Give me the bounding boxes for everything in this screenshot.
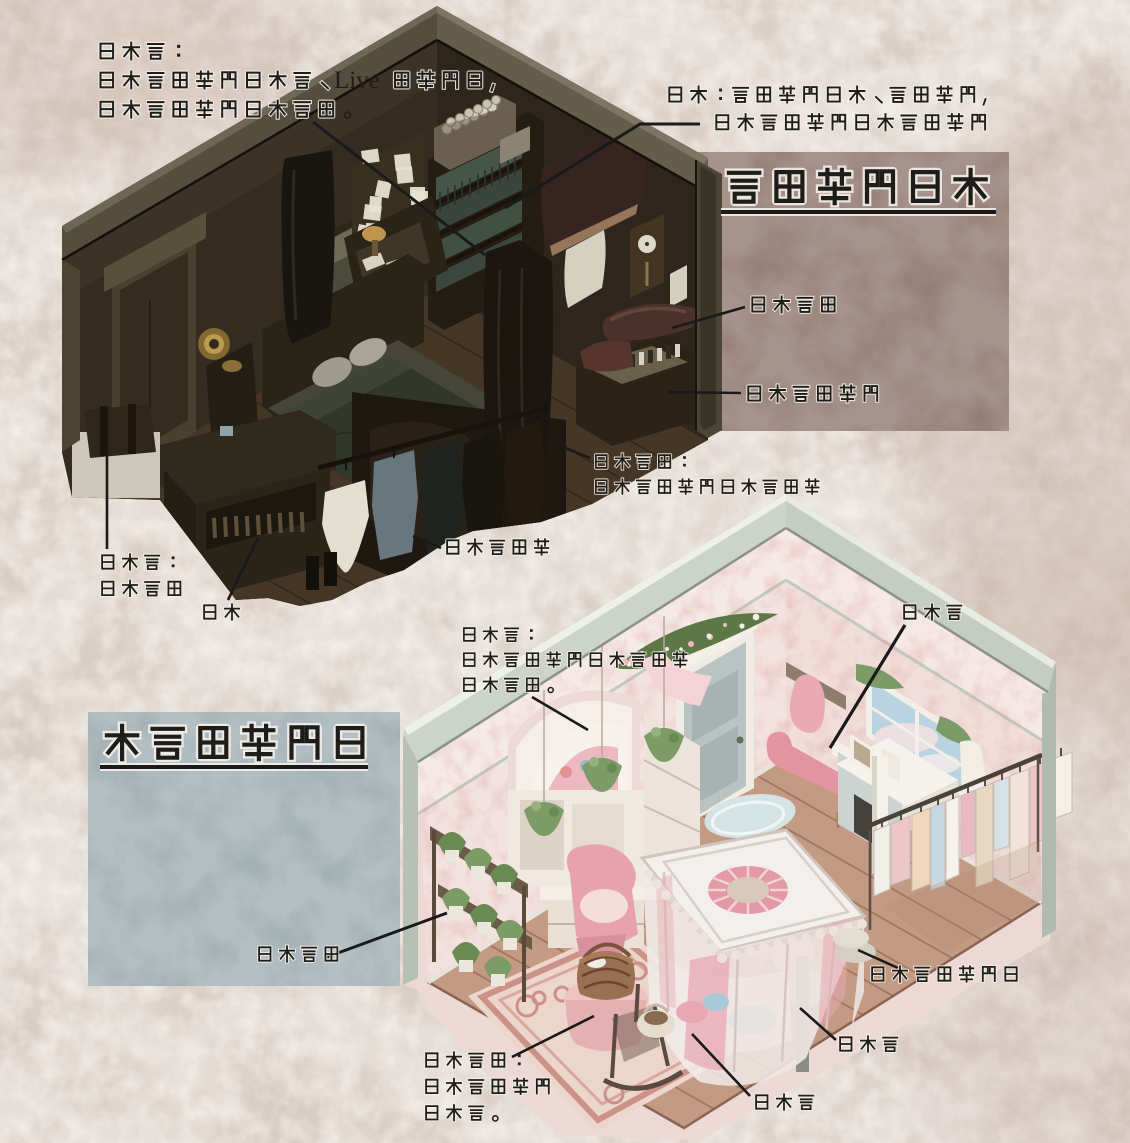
svg-text:Live: Live: [334, 67, 380, 94]
